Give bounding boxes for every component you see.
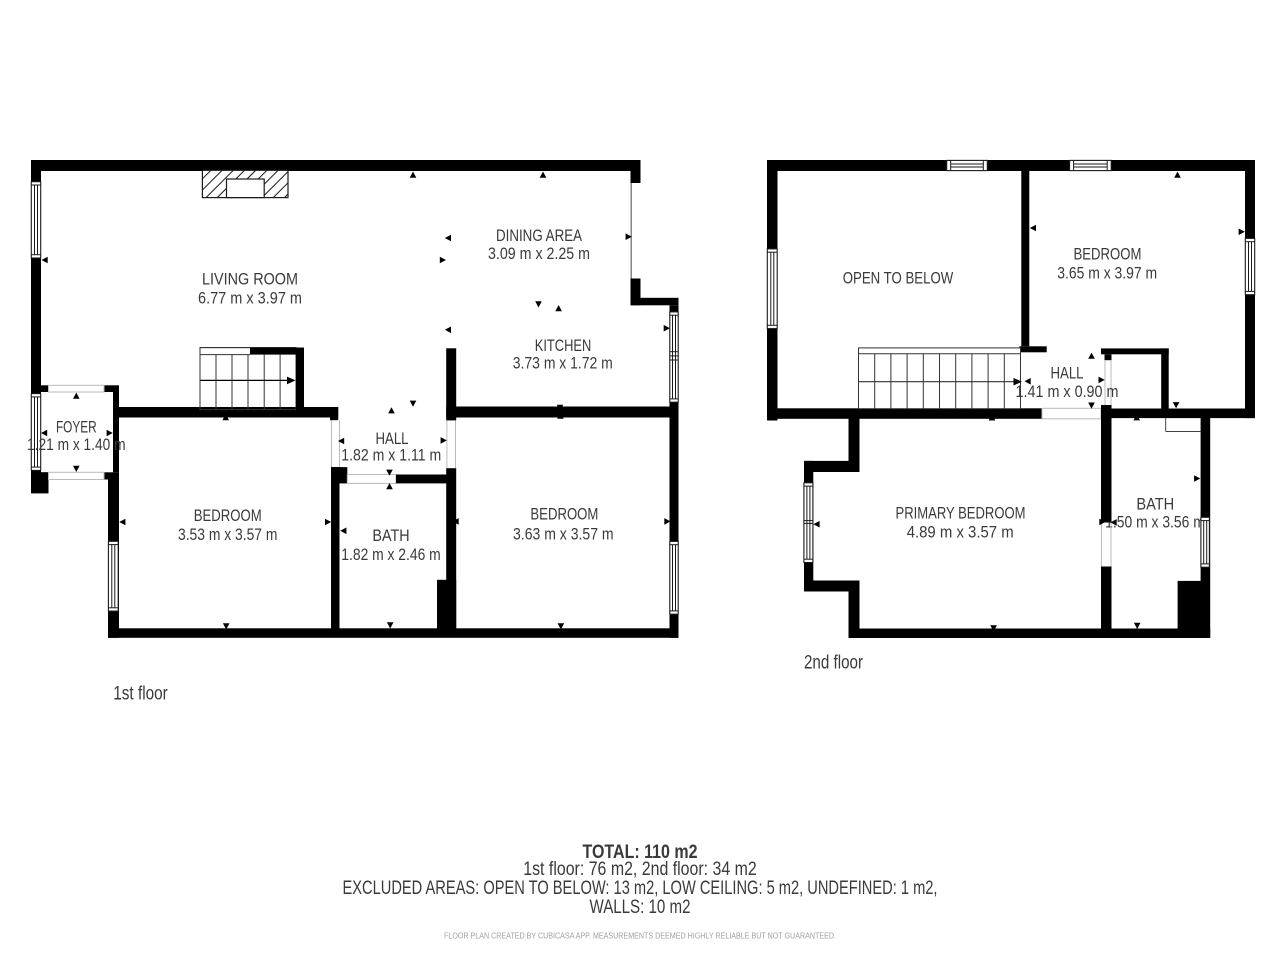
svg-text:KITCHEN: KITCHEN xyxy=(535,337,592,355)
svg-text:3.65 m x 3.97 m: 3.65 m x 3.97 m xyxy=(1057,264,1157,282)
svg-text:3.73 m x 1.72 m: 3.73 m x 1.72 m xyxy=(513,355,613,373)
svg-text:BEDROOM: BEDROOM xyxy=(194,507,262,525)
svg-text:1.21 m x 1.40 m: 1.21 m x 1.40 m xyxy=(27,436,126,454)
svg-text:BATH: BATH xyxy=(1136,495,1174,513)
svg-text:6.77 m x 3.97 m: 6.77 m x 3.97 m xyxy=(198,289,302,307)
svg-text:1st floor: 1st floor xyxy=(113,683,168,704)
svg-text:FOYER: FOYER xyxy=(56,418,97,436)
svg-text:DINING AREA: DINING AREA xyxy=(496,227,582,245)
svg-text:3.63 m x 3.57 m: 3.63 m x 3.57 m xyxy=(513,526,614,544)
svg-text:FLOOR PLAN CREATED BY CUBICASA: FLOOR PLAN CREATED BY CUBICASA APP. MEAS… xyxy=(444,931,836,940)
svg-text:LIVING ROOM: LIVING ROOM xyxy=(202,271,298,289)
svg-text:PRIMARY BEDROOM: PRIMARY BEDROOM xyxy=(896,504,1026,522)
svg-text:1.82 m x 2.46 m: 1.82 m x 2.46 m xyxy=(341,546,440,564)
svg-text:4.89 m x 3.57 m: 4.89 m x 3.57 m xyxy=(907,523,1014,541)
svg-text:EXCLUDED AREAS: OPEN TO BELOW:: EXCLUDED AREAS: OPEN TO BELOW: 13 m2, LO… xyxy=(343,878,938,899)
svg-text:BEDROOM: BEDROOM xyxy=(1074,246,1142,264)
svg-text:1.41 m x 0.90 m: 1.41 m x 0.90 m xyxy=(1016,383,1119,401)
svg-text:HALL: HALL xyxy=(1051,365,1084,383)
svg-text:HALL: HALL xyxy=(376,430,409,448)
svg-text:3.53 m x 3.57 m: 3.53 m x 3.57 m xyxy=(178,526,277,544)
svg-text:WALLS: 10 m2: WALLS: 10 m2 xyxy=(590,897,691,918)
svg-text:2nd floor: 2nd floor xyxy=(804,653,864,674)
svg-text:OPEN TO BELOW: OPEN TO BELOW xyxy=(843,270,954,288)
svg-text:1.50 m x 3.56 m: 1.50 m x 3.56 m xyxy=(1105,513,1205,531)
svg-text:1st floor: 76 m2, 2nd floor: 3: 1st floor: 76 m2, 2nd floor: 34 m2 xyxy=(523,859,757,880)
svg-text:BATH: BATH xyxy=(372,527,409,545)
svg-text:3.09 m x 2.25 m: 3.09 m x 2.25 m xyxy=(488,245,590,263)
svg-text:1.82 m x 1.11 m: 1.82 m x 1.11 m xyxy=(341,447,441,465)
svg-text:BEDROOM: BEDROOM xyxy=(530,505,598,523)
